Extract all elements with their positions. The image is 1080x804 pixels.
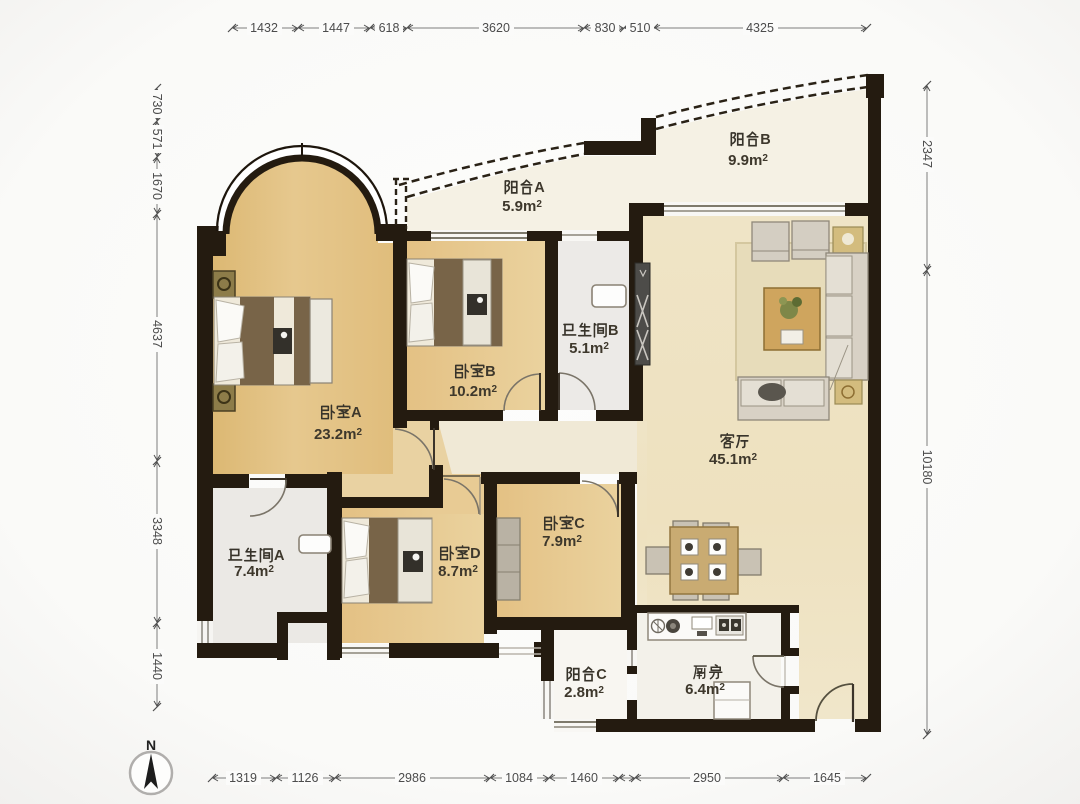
svg-text:10.2m2: 10.2m2: [449, 383, 498, 400]
svg-text:1460: 1460: [570, 771, 598, 785]
svg-text:2.8m2: 2.8m2: [564, 684, 604, 701]
svg-text:4637: 4637: [150, 320, 164, 348]
svg-text:1645: 1645: [813, 771, 841, 785]
svg-text:1126: 1126: [292, 771, 319, 785]
svg-text:1447: 1447: [322, 21, 350, 35]
svg-text:7.4m2: 7.4m2: [234, 563, 274, 580]
svg-text:9.9m2: 9.9m2: [728, 152, 768, 169]
svg-text:1319: 1319: [229, 771, 257, 785]
svg-text:A: A: [274, 548, 285, 564]
svg-text:10180: 10180: [920, 450, 934, 485]
svg-text:45.1m2: 45.1m2: [709, 451, 758, 468]
svg-text:2347: 2347: [920, 140, 934, 168]
svg-text:510: 510: [630, 21, 651, 35]
svg-text:4325: 4325: [746, 21, 774, 35]
svg-text:D: D: [470, 546, 480, 562]
svg-text:5.1m2: 5.1m2: [569, 340, 609, 357]
svg-text:618: 618: [379, 21, 400, 35]
svg-text:A: A: [534, 180, 545, 196]
svg-text:8.7m2: 8.7m2: [438, 563, 478, 580]
svg-text:1084: 1084: [505, 771, 533, 785]
svg-text:C: C: [596, 667, 607, 683]
svg-text:5.9m2: 5.9m2: [502, 198, 542, 215]
svg-text:1440: 1440: [150, 652, 164, 680]
svg-text:B: B: [760, 132, 770, 148]
svg-text:2986: 2986: [398, 771, 426, 785]
svg-text:571: 571: [150, 129, 164, 150]
svg-text:23.2m2: 23.2m2: [314, 426, 363, 443]
svg-text:B: B: [608, 323, 618, 339]
svg-text:N: N: [146, 737, 156, 753]
svg-text:2950: 2950: [693, 771, 721, 785]
svg-text:830: 830: [595, 21, 616, 35]
svg-text:C: C: [574, 516, 585, 532]
svg-text:7.9m2: 7.9m2: [542, 533, 582, 550]
svg-text:A: A: [351, 405, 362, 421]
svg-text:730: 730: [150, 94, 164, 115]
svg-text:B: B: [485, 364, 495, 380]
svg-text:3348: 3348: [150, 517, 164, 545]
svg-text:1432: 1432: [250, 21, 278, 35]
svg-text:1670: 1670: [150, 172, 164, 200]
svg-text:6.4m2: 6.4m2: [685, 681, 725, 698]
svg-text:3620: 3620: [482, 21, 510, 35]
